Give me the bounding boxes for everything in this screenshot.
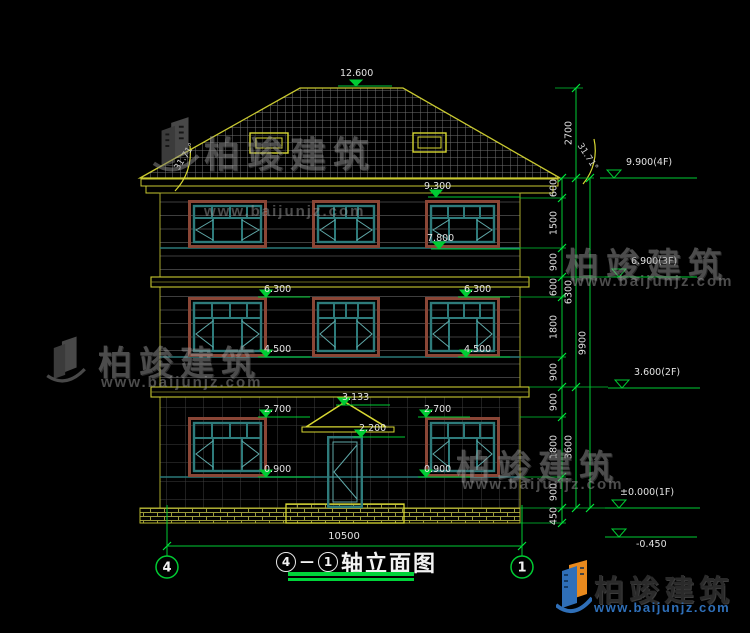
- axis-number-1: 1: [517, 561, 526, 576]
- label-floor1-level: ±0.000(1F): [620, 488, 674, 498]
- dim-seg-900b: 900: [549, 363, 559, 381]
- brand-logo-footer: [556, 560, 592, 623]
- brand-logo-icon: [44, 334, 88, 388]
- watermark-url-left: www.baijunjz.com: [101, 374, 262, 391]
- elevation-sheet: 12.600 9.300 7.800 6.300 6.300 4.500 4.5…: [0, 0, 750, 633]
- label-floor4-level: 9.900(4F): [626, 158, 672, 168]
- watermark-brand-roof: 柏竣建筑: [204, 126, 376, 178]
- title-separator: —: [300, 554, 314, 570]
- dim-seg-600b: 600: [549, 278, 559, 296]
- label-win1-head-right: 2.700: [424, 405, 451, 415]
- footer-brand-url: www.baijunjz.com: [594, 600, 730, 615]
- dim-seg-900c: 900: [549, 393, 559, 411]
- label-win2-sill-left: 4.500: [264, 345, 291, 355]
- watermark-url-right: www.baijunjz.com: [572, 273, 733, 290]
- title-underline-1: [288, 572, 414, 576]
- label-floor2-level: 3.600(2F): [634, 368, 680, 378]
- label-canopy-top: 3.133: [342, 393, 369, 403]
- label-win2-head-right: 6.300: [464, 285, 491, 295]
- brand-logo-icon: [556, 560, 592, 618]
- axis-number-4: 4: [162, 561, 171, 576]
- label-win3-sill: 7.800: [427, 234, 454, 244]
- label-ridge-level: 12.600: [340, 69, 373, 79]
- label-win1-head-left: 2.700: [264, 405, 291, 415]
- label-win1-sill-right: 0.900: [424, 465, 451, 475]
- dim-seg-600a: 600: [549, 179, 559, 197]
- label-win2-sill-right: 4.500: [464, 345, 491, 355]
- watermark-url-roof: www.baijunjz.com: [204, 203, 365, 220]
- title-underline-2: [288, 578, 414, 581]
- dim-total-width: 10500: [328, 532, 360, 542]
- dim-overall-9900: 9900: [578, 331, 588, 355]
- label-ground-level: -0.450: [636, 540, 667, 550]
- label-door-head: 2.200: [359, 424, 386, 434]
- watermark-logo-left: [44, 334, 88, 393]
- dim-seg-1800a: 1800: [549, 315, 559, 339]
- watermark-logo-roof: [150, 114, 202, 183]
- label-win3-head: 9.300: [424, 182, 451, 192]
- dim-seg-2700: 2700: [564, 121, 574, 145]
- title-axis-end: 1: [318, 552, 338, 572]
- dim-seg-900a: 900: [549, 253, 559, 271]
- brand-logo-icon: [150, 114, 202, 178]
- title-axis-start: 4: [276, 552, 296, 572]
- dim-seg-450: 450: [549, 507, 559, 525]
- watermark-url-lower: www.baijunjz.com: [462, 476, 623, 493]
- label-win1-sill-left: 0.900: [264, 465, 291, 475]
- label-win2-head-left: 6.300: [264, 285, 291, 295]
- dim-seg-1500: 1500: [549, 211, 559, 235]
- roof-dormer-right: [413, 133, 446, 152]
